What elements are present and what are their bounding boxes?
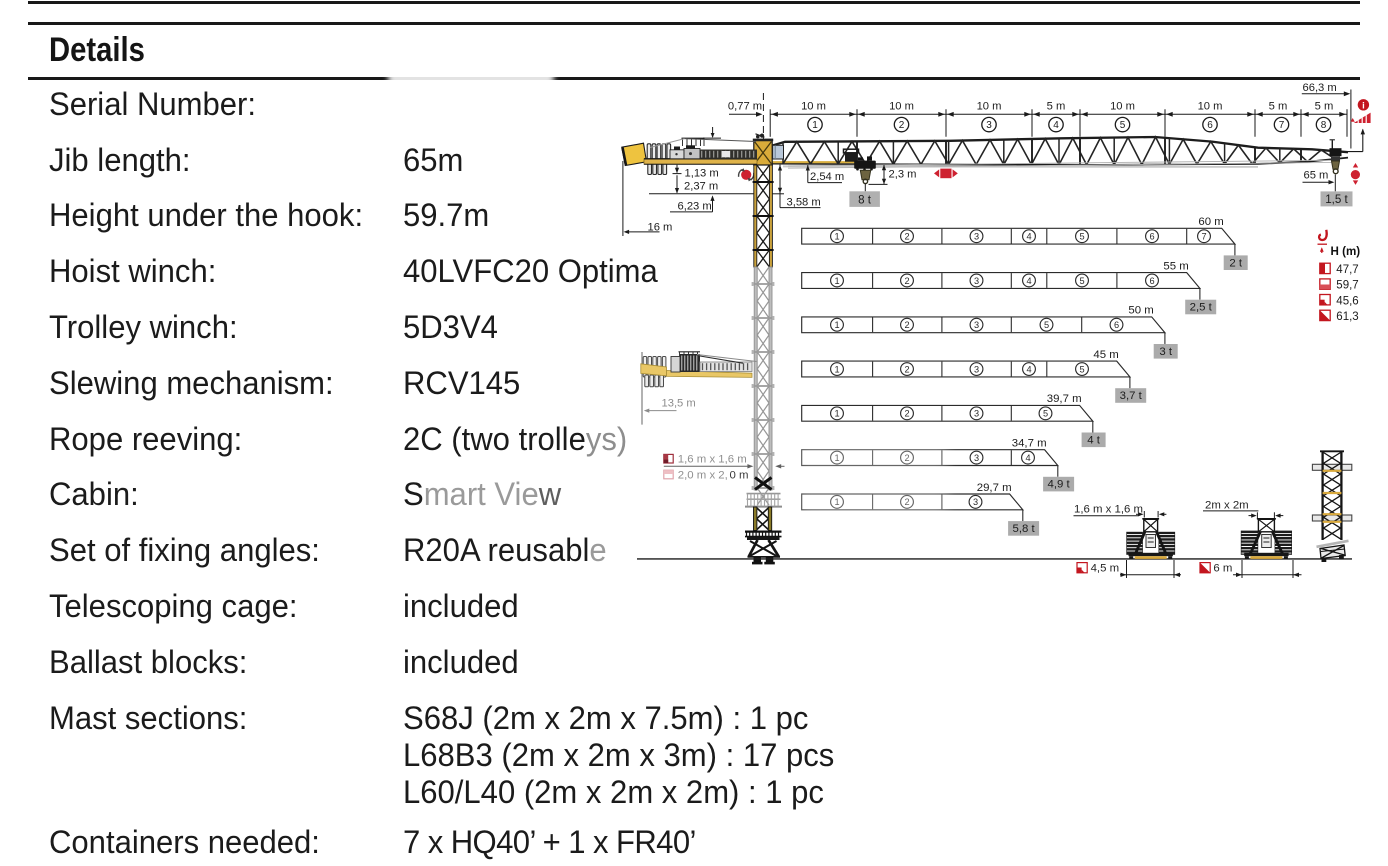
svg-text:8: 8 <box>1321 120 1327 131</box>
svg-text:13,5 m: 13,5 m <box>662 397 696 409</box>
svg-text:1: 1 <box>812 120 818 131</box>
svg-text:1: 1 <box>834 232 839 242</box>
svg-text:5: 5 <box>1079 232 1084 242</box>
svg-text:7: 7 <box>1279 120 1285 131</box>
svg-text:7: 7 <box>1201 232 1206 242</box>
svg-text:3: 3 <box>974 409 979 419</box>
svg-text:5: 5 <box>1120 120 1126 131</box>
svg-text:6,23 m: 6,23 m <box>678 201 712 213</box>
svg-text:1: 1 <box>834 276 839 286</box>
svg-text:0,77 m: 0,77 m <box>728 101 762 113</box>
svg-text:3: 3 <box>974 453 979 463</box>
svg-text:2: 2 <box>904 320 909 330</box>
svg-text:1: 1 <box>834 320 839 330</box>
svg-text:2,3 m: 2,3 m <box>889 168 917 180</box>
svg-text:4 t: 4 t <box>1087 434 1100 446</box>
svg-text:6 m: 6 m <box>1213 563 1232 575</box>
svg-text:3 t: 3 t <box>1159 346 1172 358</box>
svg-text:1,13 m: 1,13 m <box>685 167 719 179</box>
svg-text:3: 3 <box>974 232 979 242</box>
svg-text:10 m: 10 m <box>1198 101 1223 113</box>
svg-text:4,5 m: 4,5 m <box>1091 563 1120 575</box>
svg-text:4: 4 <box>1026 276 1031 286</box>
svg-text:4,9 t: 4,9 t <box>1048 479 1071 491</box>
svg-text:6: 6 <box>1149 276 1154 286</box>
svg-text:34,7 m: 34,7 m <box>1012 438 1047 450</box>
svg-text:66,3 m: 66,3 m <box>1303 82 1337 94</box>
svg-text:10 m: 10 m <box>1110 101 1135 113</box>
svg-text:2,37 m: 2,37 m <box>684 181 718 193</box>
svg-text:3: 3 <box>974 276 979 286</box>
svg-text:1,6 m x 1,6 m: 1,6 m x 1,6 m <box>1074 504 1143 516</box>
svg-text:3: 3 <box>973 497 978 507</box>
svg-text:5 m: 5 m <box>1315 101 1334 113</box>
svg-text:2,54 m: 2,54 m <box>810 171 844 183</box>
svg-text:5 m: 5 m <box>1047 101 1066 113</box>
svg-text:3,7 t: 3,7 t <box>1120 390 1143 402</box>
svg-text:60 m: 60 m <box>1198 216 1223 228</box>
svg-text:1: 1 <box>834 409 839 419</box>
svg-text:5 m: 5 m <box>1269 101 1288 113</box>
svg-text:5: 5 <box>1079 364 1084 374</box>
svg-text:2,5 t: 2,5 t <box>1190 302 1213 314</box>
svg-text:3: 3 <box>974 364 979 374</box>
svg-text:2: 2 <box>904 409 909 419</box>
svg-text:1,5 t: 1,5 t <box>1325 193 1348 206</box>
svg-text:2m x 2m: 2m x 2m <box>1205 499 1249 511</box>
svg-text:5: 5 <box>1079 276 1084 286</box>
svg-text:2: 2 <box>904 276 909 286</box>
svg-text:47,7: 47,7 <box>1336 264 1358 276</box>
svg-text:45 m: 45 m <box>1093 349 1118 361</box>
svg-text:45,6: 45,6 <box>1336 295 1358 307</box>
svg-text:50 m: 50 m <box>1128 305 1153 317</box>
svg-text:2: 2 <box>899 120 905 131</box>
svg-text:5: 5 <box>1044 320 1049 330</box>
svg-text:6: 6 <box>1114 320 1119 330</box>
svg-text:H (m): H (m) <box>1331 245 1361 258</box>
svg-text:59,7: 59,7 <box>1336 280 1358 292</box>
svg-text:29,7 m: 29,7 m <box>977 482 1012 494</box>
svg-text:10 m: 10 m <box>801 101 826 113</box>
svg-text:3: 3 <box>974 320 979 330</box>
svg-text:4: 4 <box>1025 453 1030 463</box>
svg-text:1,6 m x 1,6 m: 1,6 m x 1,6 m <box>678 453 747 465</box>
svg-text:0 m: 0 m <box>730 469 749 481</box>
svg-text:4: 4 <box>1053 120 1059 131</box>
svg-text:1: 1 <box>834 364 839 374</box>
svg-text:10 m: 10 m <box>977 101 1002 113</box>
svg-text:i: i <box>1362 101 1365 112</box>
svg-text:4: 4 <box>1026 364 1031 374</box>
svg-text:61,3: 61,3 <box>1336 311 1358 323</box>
svg-text:5: 5 <box>1043 409 1048 419</box>
svg-text:5,8 t: 5,8 t <box>1013 523 1036 535</box>
svg-text:3: 3 <box>986 120 992 131</box>
svg-text:55 m: 55 m <box>1163 260 1188 272</box>
svg-text:10 m: 10 m <box>889 101 914 113</box>
svg-text:8 t: 8 t <box>858 193 872 206</box>
svg-text:6: 6 <box>1149 232 1154 242</box>
svg-text:3,58 m: 3,58 m <box>787 196 821 208</box>
svg-text:2: 2 <box>904 364 909 374</box>
svg-text:4: 4 <box>1026 232 1031 242</box>
svg-text:6: 6 <box>1207 120 1213 131</box>
svg-text:2 t: 2 t <box>1229 257 1242 269</box>
svg-text:2: 2 <box>904 232 909 242</box>
svg-text:2,0 m x 2,: 2,0 m x 2, <box>678 469 728 481</box>
svg-text:39,7 m: 39,7 m <box>1047 393 1082 405</box>
svg-text:65 m: 65 m <box>1304 170 1329 182</box>
